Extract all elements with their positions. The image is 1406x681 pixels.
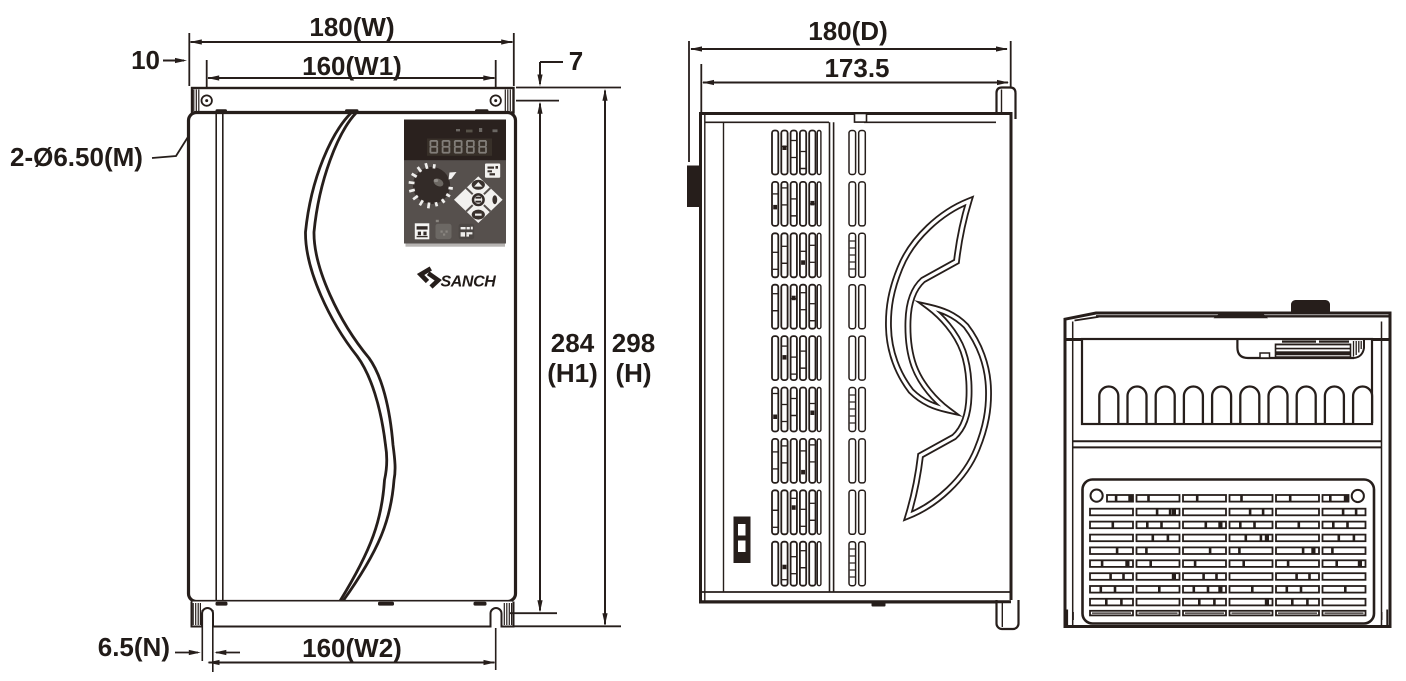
svg-text:160(W1): 160(W1) <box>302 51 402 81</box>
svg-text:284: 284 <box>551 328 595 358</box>
svg-text:10: 10 <box>131 45 160 75</box>
svg-text:180(D): 180(D) <box>808 16 887 46</box>
svg-text:(H): (H) <box>615 358 651 388</box>
svg-text:7: 7 <box>569 46 583 76</box>
svg-text:2-Ø6.50(M): 2-Ø6.50(M) <box>10 142 143 172</box>
svg-text:SANCH: SANCH <box>441 274 497 291</box>
svg-text:180(W): 180(W) <box>309 12 394 42</box>
svg-text:160(W2): 160(W2) <box>302 633 402 663</box>
svg-text:173.5: 173.5 <box>824 53 889 83</box>
svg-text:6.5(N): 6.5(N) <box>98 632 170 662</box>
svg-text:(H1): (H1) <box>547 358 598 388</box>
svg-text:298: 298 <box>612 328 655 358</box>
